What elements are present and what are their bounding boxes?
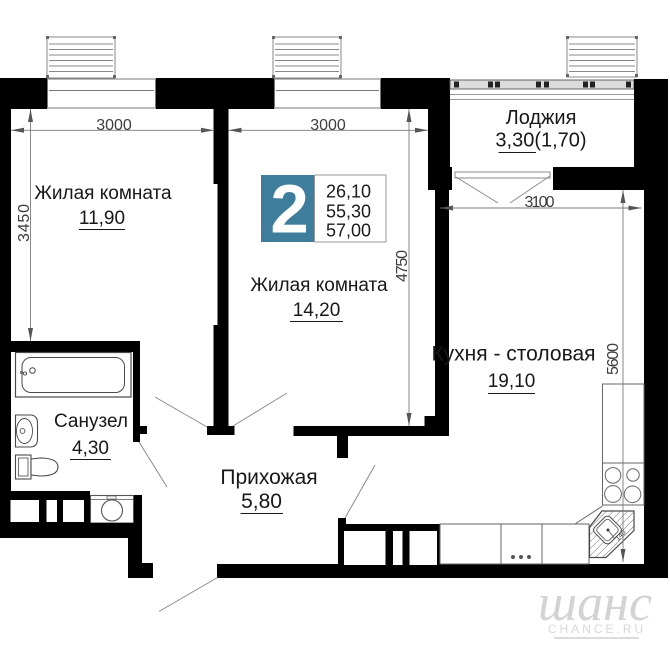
svg-text:5,80: 5,80 — [241, 490, 282, 513]
svg-text:19,10: 19,10 — [488, 371, 536, 392]
svg-text:55,30: 55,30 — [326, 202, 371, 222]
svg-text:4750: 4750 — [394, 250, 411, 282]
svg-text:Жилая комната: Жилая комната — [250, 275, 388, 296]
svg-text:26,10: 26,10 — [326, 182, 371, 202]
svg-text:11,90: 11,90 — [79, 208, 125, 229]
svg-text:3100: 3100 — [525, 194, 555, 211]
svg-text:Прихожая: Прихожая — [220, 466, 317, 489]
svg-text:Лоджия: Лоджия — [506, 107, 577, 129]
svg-text:3450: 3450 — [16, 204, 33, 242]
svg-text:3000: 3000 — [96, 117, 132, 134]
svg-text:14,20: 14,20 — [293, 300, 341, 321]
svg-text:Кухня - столовая: Кухня - столовая — [431, 343, 595, 366]
svg-text:3000: 3000 — [310, 117, 346, 134]
svg-text:3,30(1,70): 3,30(1,70) — [495, 130, 586, 152]
svg-text:Санузел: Санузел — [54, 411, 128, 432]
svg-text:4,30: 4,30 — [72, 438, 109, 459]
svg-text:57,00: 57,00 — [326, 221, 371, 241]
svg-text:2: 2 — [270, 171, 308, 248]
svg-text:5600: 5600 — [605, 343, 622, 375]
svg-text:Жилая комната: Жилая комната — [34, 183, 172, 204]
svg-text:CHANCE.RU: CHANCE.RU — [548, 622, 646, 636]
